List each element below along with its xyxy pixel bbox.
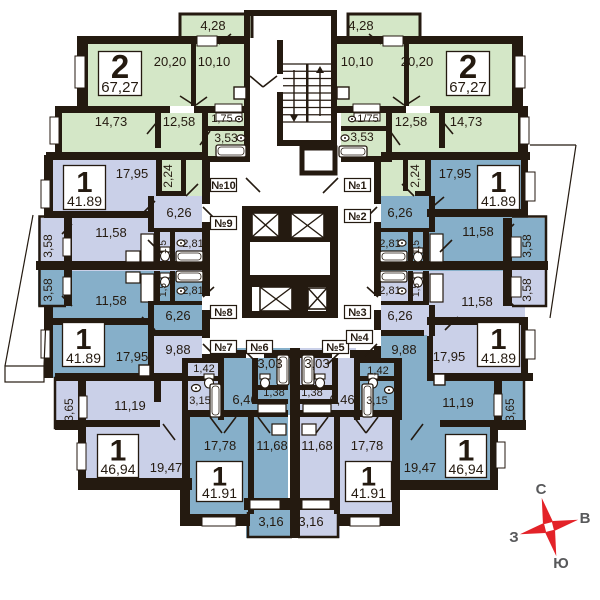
svg-text:2,24: 2,24 (161, 164, 175, 188)
svg-text:№3: №3 (348, 307, 366, 319)
svg-text:6,46: 6,46 (329, 392, 354, 407)
svg-text:67,27: 67,27 (449, 79, 487, 96)
svg-text:14,73: 14,73 (95, 114, 128, 129)
svg-text:1,5: 1,5 (411, 240, 422, 254)
svg-text:11,19: 11,19 (442, 395, 474, 410)
svg-text:В: В (580, 510, 591, 527)
svg-text:9,88: 9,88 (165, 342, 190, 357)
svg-text:3,15: 3,15 (366, 395, 387, 407)
svg-text:1,5: 1,5 (411, 283, 422, 297)
svg-text:4,28: 4,28 (348, 18, 373, 33)
svg-text:3,58: 3,58 (41, 234, 55, 258)
svg-text:17,95: 17,95 (439, 166, 472, 181)
svg-text:3,03: 3,03 (257, 356, 282, 371)
svg-text:№8: №8 (214, 307, 232, 319)
svg-text:17,95: 17,95 (116, 166, 149, 181)
svg-text:17,78: 17,78 (204, 438, 237, 453)
svg-text:6,26: 6,26 (387, 308, 412, 323)
svg-text:17,95: 17,95 (116, 349, 149, 364)
svg-text:11,58: 11,58 (461, 294, 493, 309)
svg-text:3,03: 3,03 (304, 356, 329, 371)
svg-text:11,68: 11,68 (256, 438, 288, 453)
svg-text:3,65: 3,65 (503, 398, 517, 422)
svg-text:№5: №5 (326, 342, 344, 354)
svg-text:6,46: 6,46 (232, 392, 257, 407)
svg-text:20,20: 20,20 (154, 54, 187, 69)
svg-text:№1: №1 (348, 180, 366, 192)
svg-text:19,47: 19,47 (404, 460, 437, 475)
svg-text:2,24: 2,24 (408, 164, 422, 188)
svg-text:41.89: 41.89 (67, 193, 102, 209)
svg-text:3,16: 3,16 (258, 514, 283, 529)
svg-text:11,68: 11,68 (301, 438, 333, 453)
svg-text:3,16: 3,16 (298, 514, 323, 529)
svg-text:3,53: 3,53 (350, 130, 374, 144)
svg-text:46,94: 46,94 (448, 461, 483, 477)
svg-text:1,5: 1,5 (158, 240, 169, 254)
svg-text:11,58: 11,58 (95, 225, 127, 240)
svg-text:1,38: 1,38 (301, 387, 322, 399)
svg-text:2,81: 2,81 (182, 285, 203, 297)
svg-text:1,75: 1,75 (211, 113, 232, 125)
svg-text:6,26: 6,26 (165, 308, 190, 323)
svg-text:3,58: 3,58 (520, 234, 534, 258)
svg-text:3,53: 3,53 (214, 131, 238, 145)
svg-text:11,19: 11,19 (114, 398, 146, 413)
svg-text:10,10: 10,10 (341, 54, 374, 69)
svg-text:19,47: 19,47 (150, 460, 183, 475)
svg-text:41.89: 41.89 (481, 193, 516, 209)
svg-text:41.89: 41.89 (481, 350, 516, 366)
svg-text:1,42: 1,42 (193, 363, 214, 375)
svg-text:С: С (536, 481, 547, 498)
svg-text:6,26: 6,26 (166, 205, 191, 220)
svg-text:Ю: Ю (553, 555, 568, 572)
svg-text:6,26: 6,26 (387, 205, 412, 220)
svg-text:41.91: 41.91 (202, 485, 237, 501)
svg-text:11,58: 11,58 (95, 293, 127, 308)
svg-text:№4: №4 (350, 332, 369, 344)
svg-text:3,15: 3,15 (189, 395, 210, 407)
svg-text:41.91: 41.91 (351, 485, 386, 501)
svg-text:67,27: 67,27 (101, 79, 139, 96)
svg-text:17,95: 17,95 (433, 349, 466, 364)
svg-text:46,94: 46,94 (100, 461, 135, 477)
svg-text:41.89: 41.89 (66, 350, 101, 366)
svg-text:2,81: 2,81 (379, 238, 400, 250)
svg-text:1,42: 1,42 (367, 365, 388, 377)
svg-text:20,20: 20,20 (401, 54, 434, 69)
svg-text:З: З (509, 529, 518, 546)
svg-text:11,58: 11,58 (462, 224, 494, 239)
svg-text:12,58: 12,58 (163, 114, 196, 129)
svg-text:14,73: 14,73 (450, 114, 483, 129)
svg-text:17,78: 17,78 (351, 438, 384, 453)
svg-text:1,38: 1,38 (263, 387, 284, 399)
svg-text:№6: №6 (250, 342, 268, 354)
svg-text:2,81: 2,81 (379, 285, 400, 297)
svg-text:10,10: 10,10 (198, 54, 231, 69)
svg-text:2,81: 2,81 (182, 238, 203, 250)
svg-text:№10: №10 (211, 180, 236, 192)
svg-text:9,88: 9,88 (391, 342, 416, 357)
svg-text:3,58: 3,58 (41, 278, 55, 302)
svg-text:№9: №9 (214, 218, 232, 230)
svg-text:4,28: 4,28 (200, 18, 225, 33)
svg-text:3,65: 3,65 (62, 398, 76, 422)
svg-text:№2: №2 (348, 211, 366, 223)
svg-text:3,58: 3,58 (520, 278, 534, 302)
svg-text:№7: №7 (214, 342, 232, 354)
svg-text:12,58: 12,58 (395, 114, 428, 129)
svg-text:1,5: 1,5 (158, 283, 169, 297)
svg-text:1/75: 1/75 (357, 113, 378, 125)
